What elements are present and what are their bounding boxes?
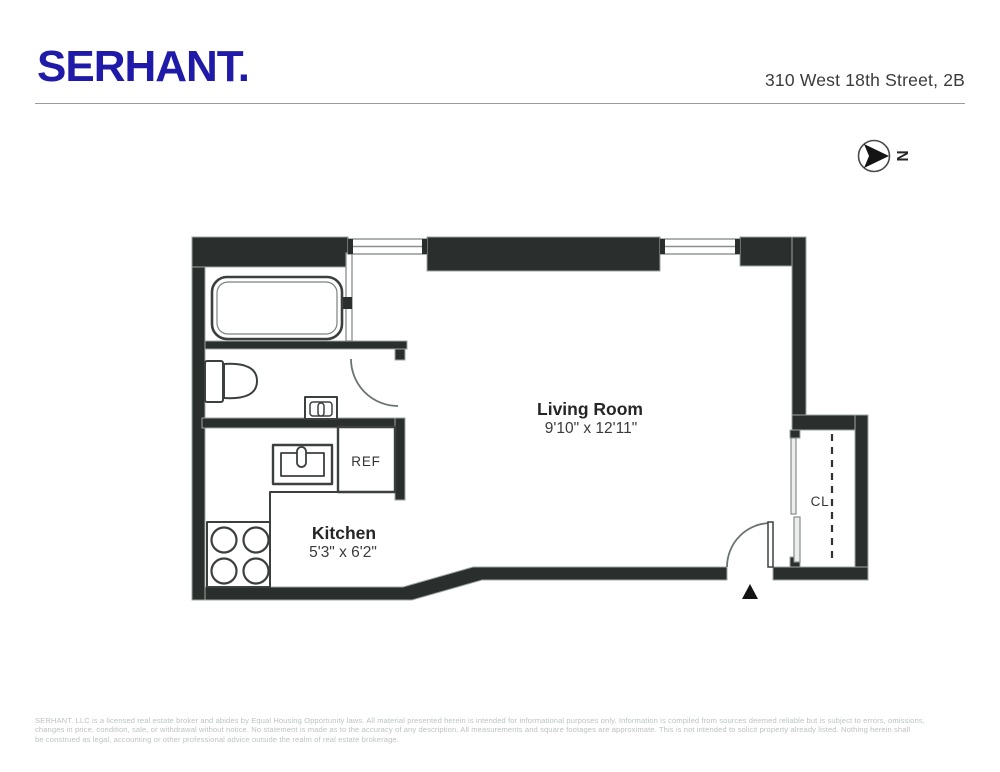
- disclaimer-line-1: SERHANT. LLC is a licensed real estate b…: [35, 716, 965, 725]
- living-room-dimensions: 9'10" x 12'11": [545, 420, 637, 437]
- closet-label: CL: [811, 494, 830, 509]
- toilet: [205, 361, 257, 402]
- wall-right: [792, 237, 806, 430]
- bathroom-sink: [305, 397, 337, 419]
- window-2: [660, 239, 740, 254]
- bathtub: [212, 277, 342, 339]
- entry-marker-triangle: [742, 584, 758, 599]
- legal-disclaimer: SERHANT. LLC is a licensed real estate b…: [35, 716, 965, 744]
- disclaimer-line-3: be construed as legal, accounting or oth…: [35, 735, 965, 744]
- disclaimer-line-2: changes in price, condition, sale, or wi…: [35, 725, 965, 734]
- floorplan-page: SERHANT. 310 West 18th Street, 2B N: [0, 0, 1000, 772]
- living-room-label: Living Room: [537, 399, 643, 419]
- entry-door: [727, 522, 773, 567]
- stove: [207, 522, 270, 587]
- kitchen-label: Kitchen: [312, 523, 376, 543]
- closet-sliding-doors: [791, 438, 800, 562]
- shower-fitting-mark: [342, 297, 352, 309]
- bathroom-door-swing-arc: [351, 359, 398, 406]
- refrigerator-label: REF: [351, 454, 380, 469]
- kitchen-counter-edge: [270, 492, 338, 522]
- wall-bathroom-door-jamb: [395, 349, 405, 360]
- compass-north-label: N: [893, 150, 910, 161]
- compass-north-icon: N: [859, 141, 910, 172]
- wall-closet-bottom: [773, 567, 868, 580]
- floorplan-drawing: N: [0, 0, 1000, 772]
- wall-closet-stub-top: [790, 430, 800, 438]
- wall-bottom: [205, 567, 727, 600]
- wall-kitchen-right: [395, 418, 405, 500]
- wall-bathroom-divider: [205, 341, 407, 349]
- wall-closet-right: [855, 415, 868, 580]
- wall-top-left: [192, 237, 348, 267]
- window-1: [348, 239, 427, 254]
- kitchen-dimensions: 5'3" x 6'2": [309, 544, 377, 561]
- wall-top-middle: [427, 237, 660, 271]
- kitchen-sink: [273, 445, 332, 484]
